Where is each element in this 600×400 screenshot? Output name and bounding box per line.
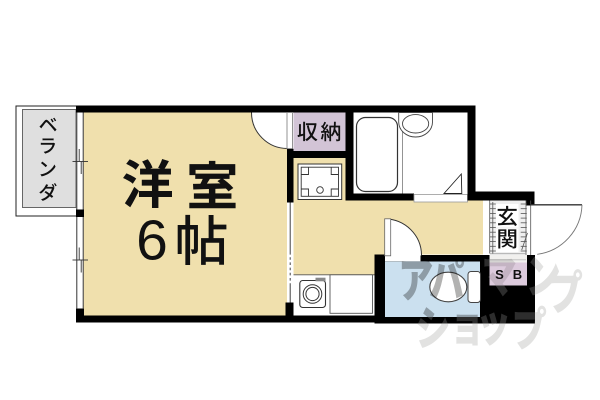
- svg-text:6: 6: [136, 209, 168, 273]
- svg-text:B: B: [513, 267, 522, 282]
